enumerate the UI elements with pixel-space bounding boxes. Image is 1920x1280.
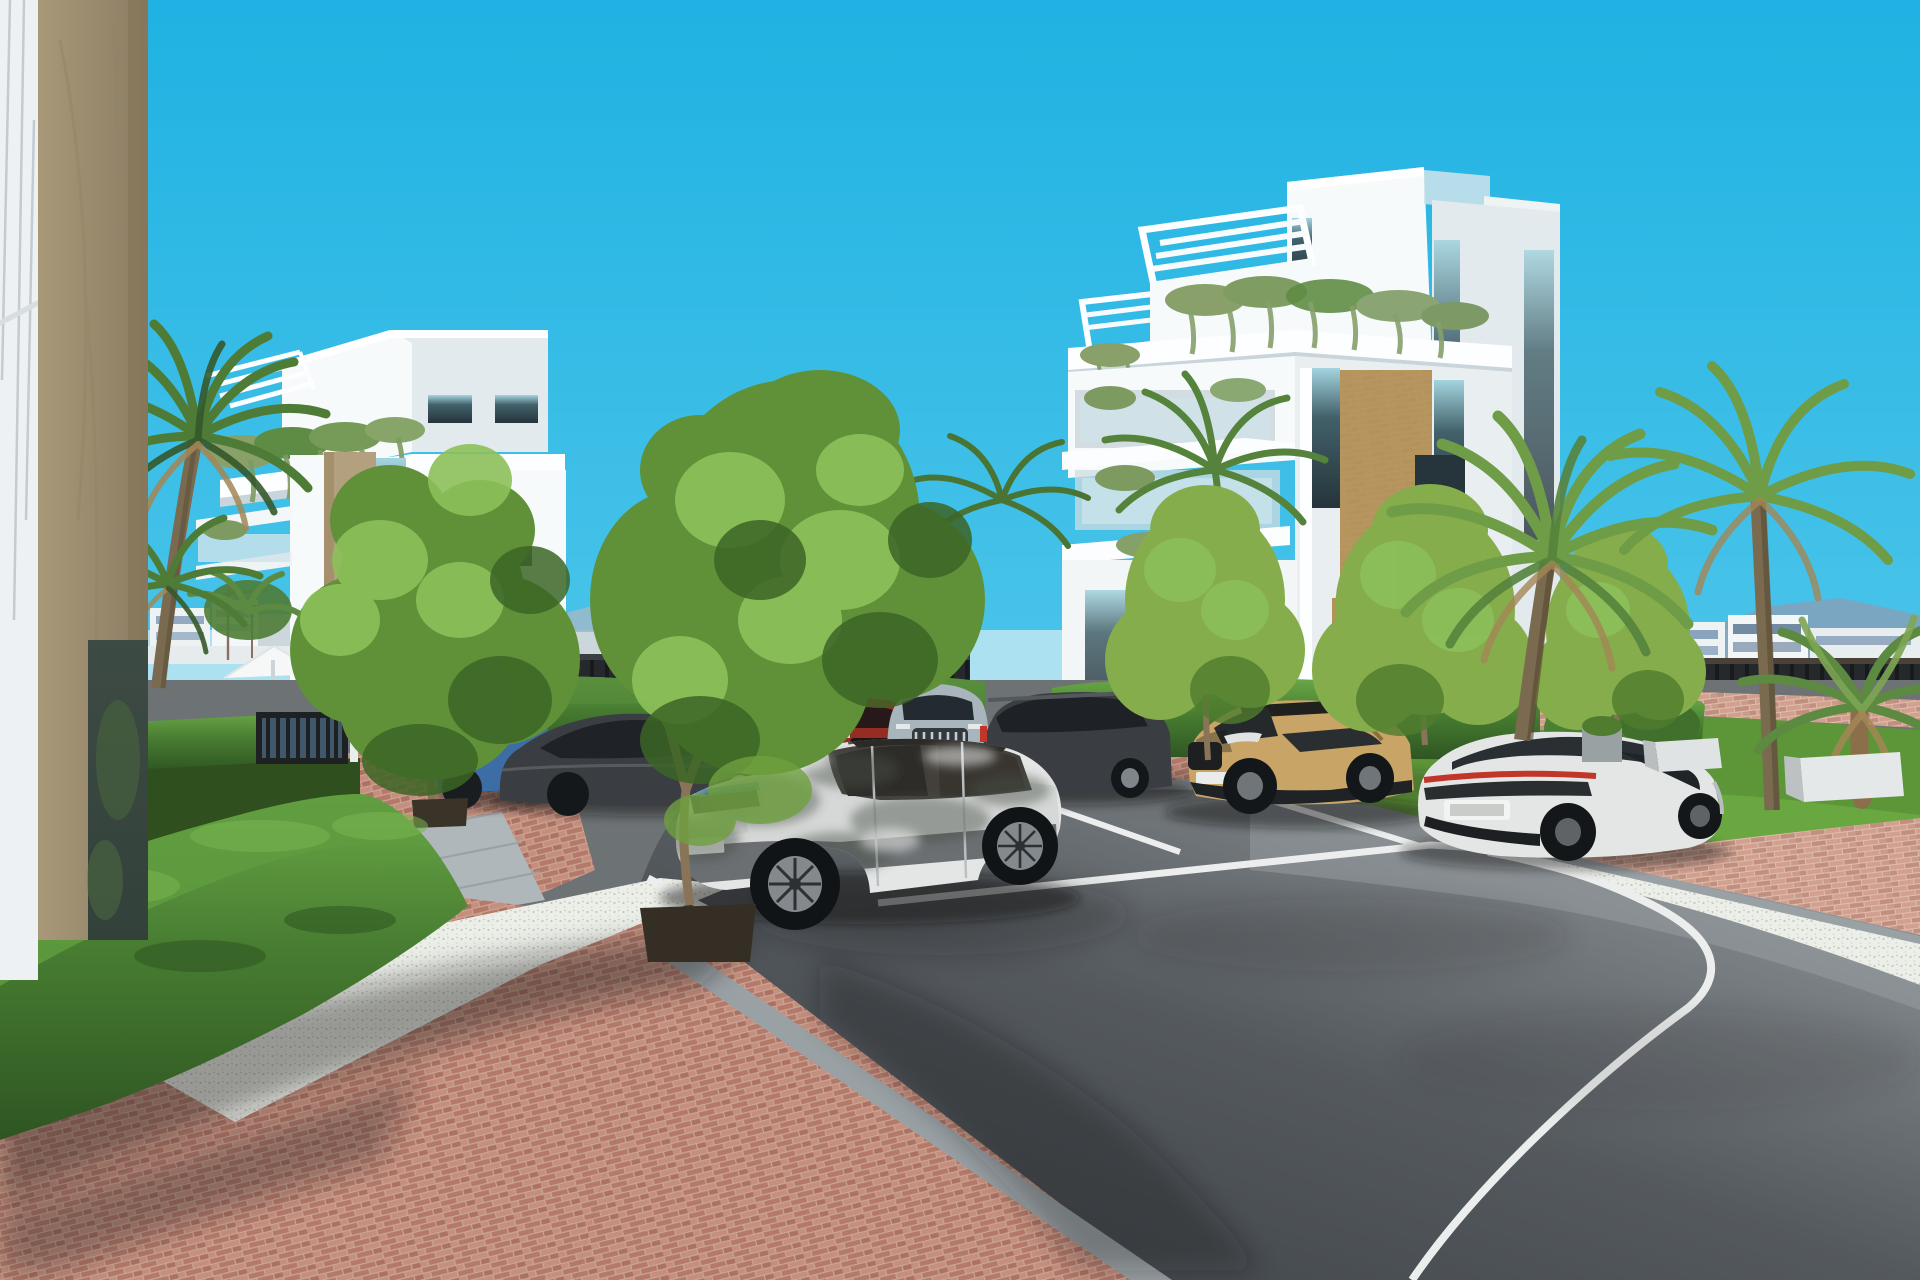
window — [1310, 368, 1340, 508]
window — [495, 395, 538, 423]
render-canvas — [0, 0, 1920, 1280]
foreground-building-corner — [0, 0, 148, 980]
window — [428, 395, 472, 423]
architectural-rendering — [0, 0, 1920, 1280]
